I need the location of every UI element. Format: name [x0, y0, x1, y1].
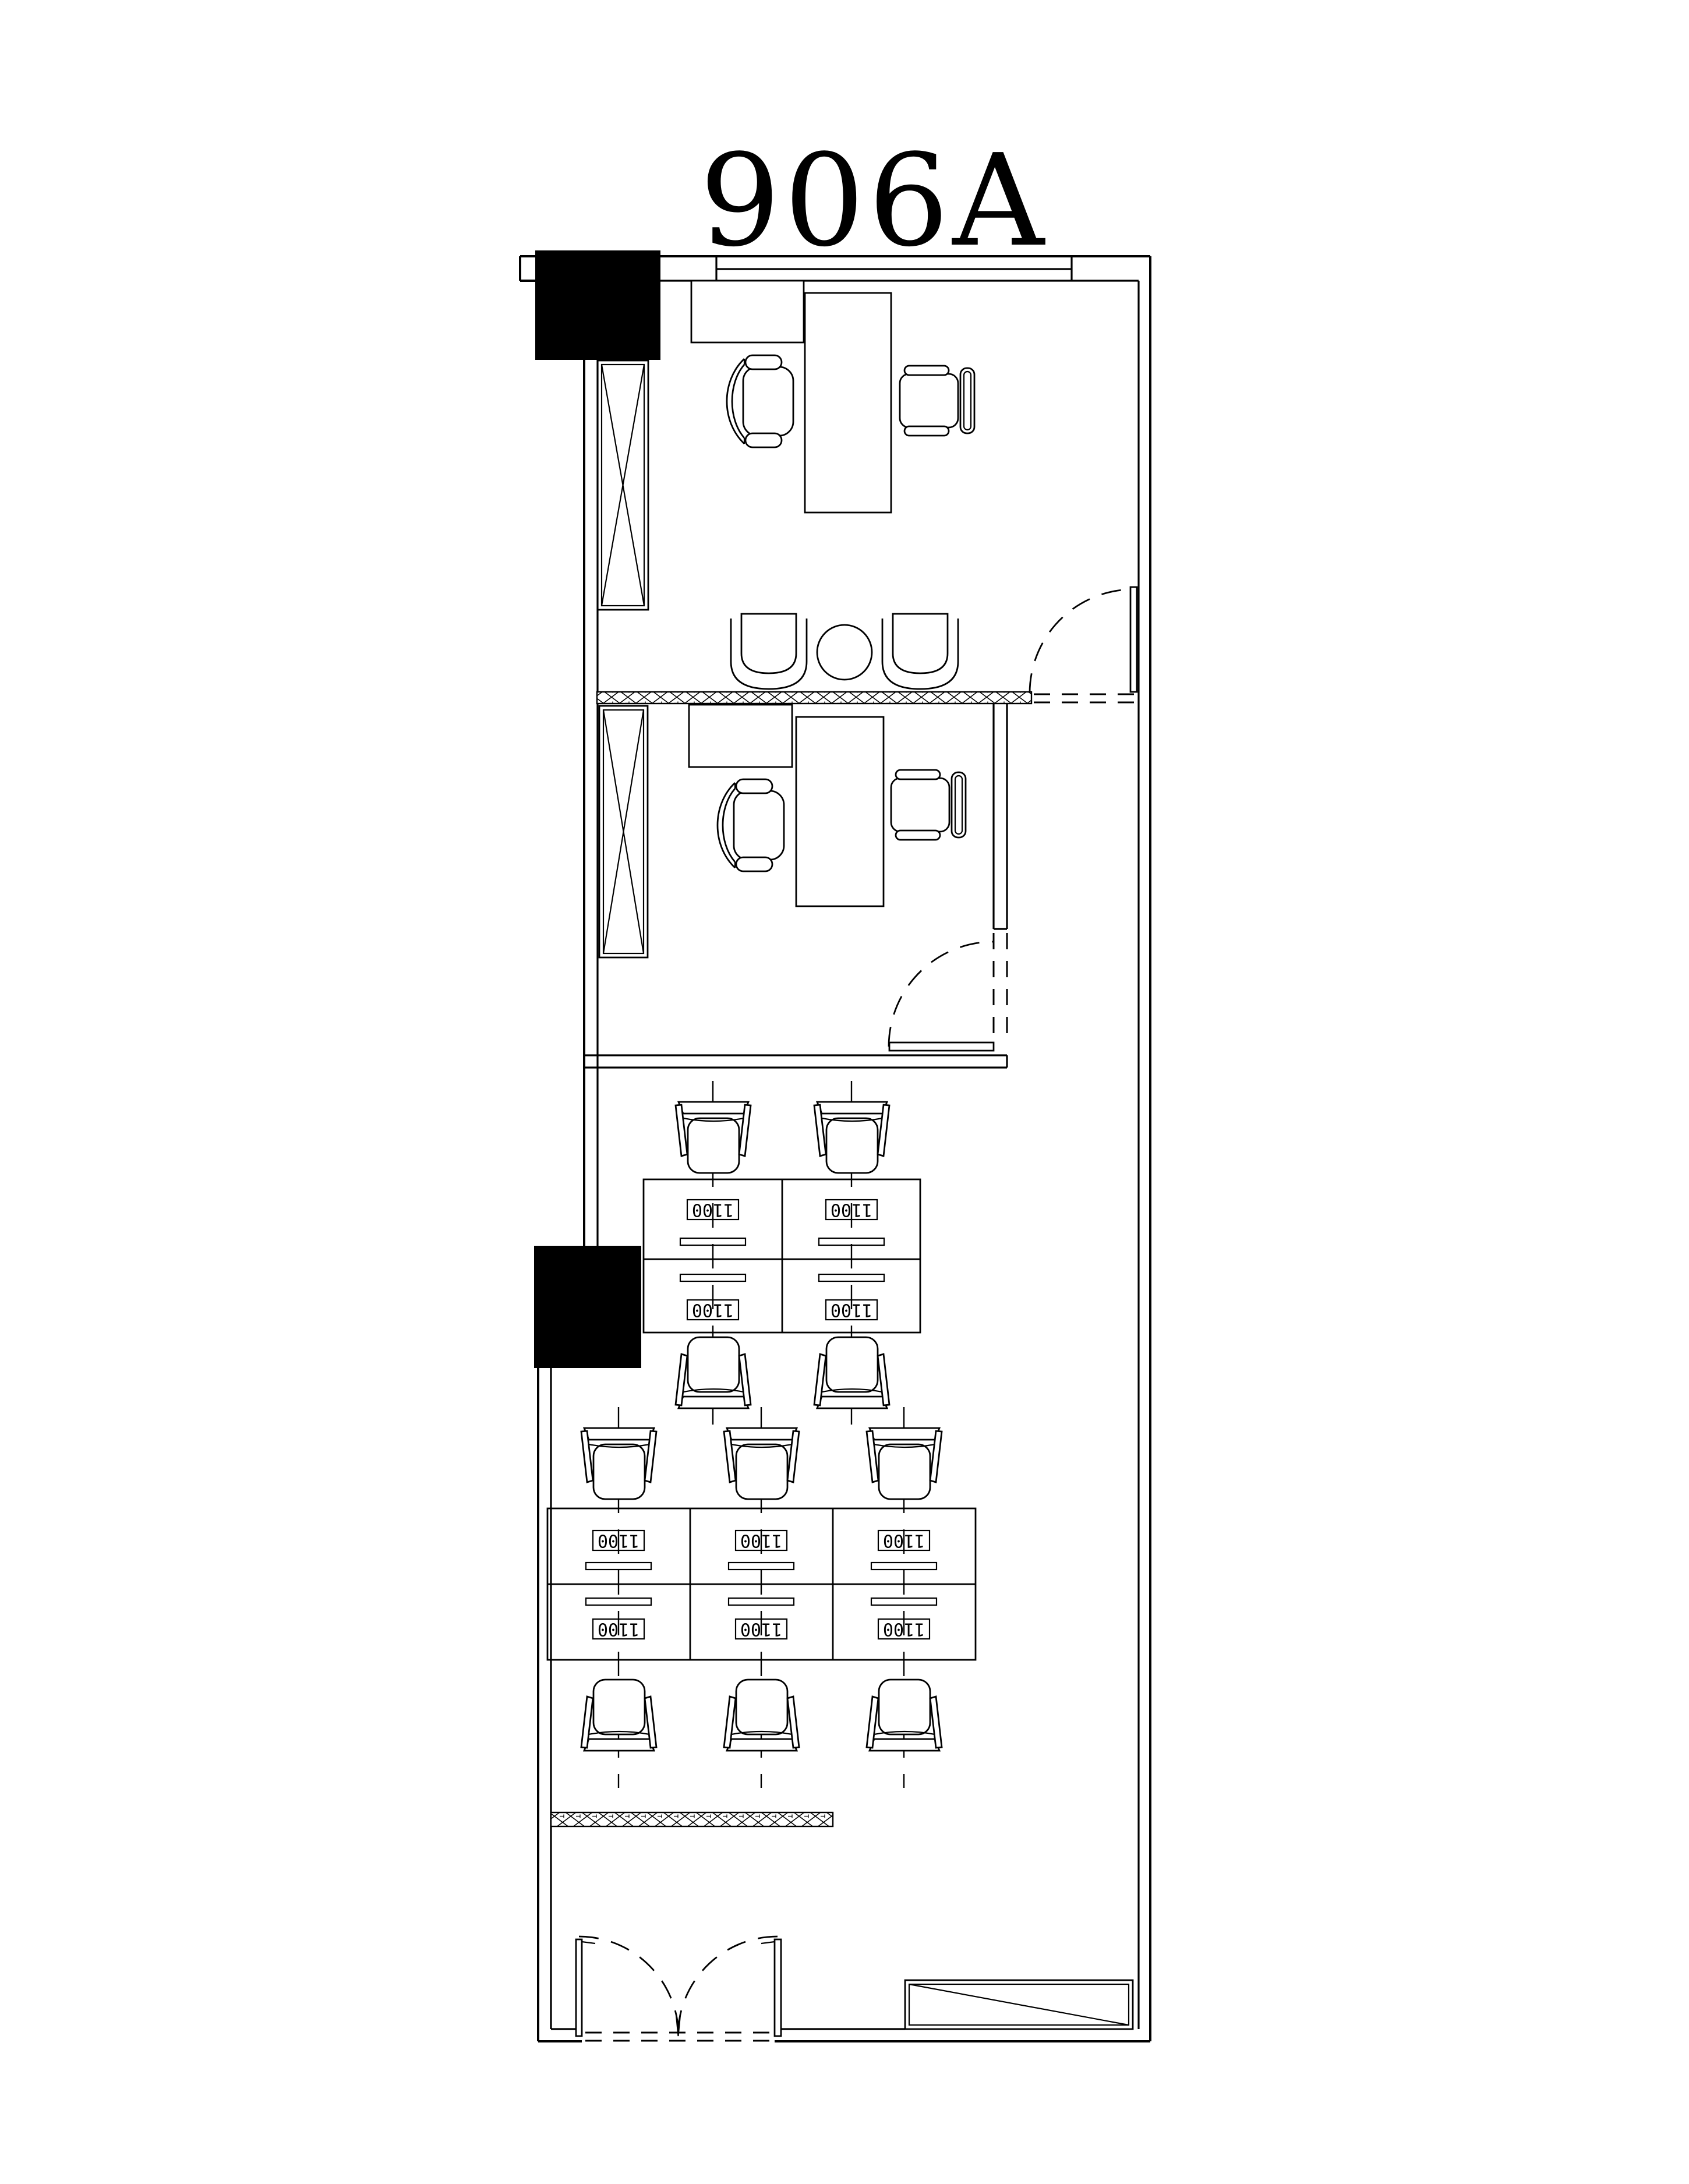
workstation-group-1: 1100 1100 1100 1100	[644, 1081, 920, 1425]
door-office-2	[889, 942, 994, 1051]
ws-chair	[814, 1337, 889, 1408]
closet-2	[599, 706, 648, 957]
ws-chair	[867, 1680, 942, 1751]
floor-plan-drawing: 906A	[0, 0, 1689, 2184]
meeting-chair-2	[882, 614, 958, 689]
desk-label: 1100	[740, 1531, 782, 1551]
entrance-double-door	[576, 1936, 781, 2041]
desk-label: 1100	[598, 1619, 639, 1639]
guest-chair-office-2	[891, 770, 966, 840]
door-leaf-office-1	[1130, 587, 1137, 692]
ws-chair	[867, 1428, 942, 1499]
office-2	[599, 705, 966, 957]
desk-office-2	[796, 717, 884, 906]
ws-chair	[581, 1428, 656, 1499]
desk-label: 1100	[692, 1300, 734, 1320]
entrance-swing-left	[579, 1936, 679, 2036]
closet-1	[598, 361, 648, 610]
ws-chair	[814, 1102, 889, 1173]
ws-chair	[676, 1102, 751, 1173]
desk-label: 1100	[831, 1300, 872, 1320]
exec-chair-office-2	[718, 779, 784, 871]
desk-label: 1100	[692, 1200, 734, 1220]
workstation-group-2: 1100 1100 1100 1100 1100 1100	[547, 1407, 976, 1788]
desk-label: 1100	[883, 1531, 925, 1551]
entrance-leaf-right	[775, 1939, 781, 2036]
hatched-wall-1	[597, 692, 1031, 704]
meeting-chair-1	[731, 614, 807, 689]
desk-label: 1100	[831, 1200, 872, 1220]
desk-return-office-2	[689, 705, 792, 767]
column-2	[535, 1246, 641, 1367]
entrance-leaf-left	[576, 1939, 582, 2036]
exec-chair-office-1	[727, 355, 793, 447]
desk-label: 1100	[883, 1619, 925, 1639]
door-office-1	[1030, 587, 1137, 702]
door-swing-office-2	[889, 942, 994, 1047]
door-leaf-office-2	[889, 1042, 994, 1051]
desk-label: 1100	[740, 1619, 782, 1639]
floor-plan-page: 906A	[0, 0, 1689, 2184]
entrance-swing-right	[678, 1936, 778, 2036]
side-table	[817, 625, 872, 680]
hatched-wall-2	[551, 1812, 833, 1826]
desk-return-office-1	[691, 281, 804, 342]
ws-chair	[581, 1680, 656, 1751]
meeting-corner	[731, 614, 958, 689]
desk-label: 1100	[598, 1531, 639, 1551]
plan-number: 906A	[699, 128, 1048, 275]
guest-chair-office-1	[900, 366, 974, 436]
door-swing-office-1	[1030, 589, 1133, 693]
desk-office-1	[805, 293, 891, 513]
ws-chair	[676, 1337, 751, 1408]
ws-chair	[724, 1428, 799, 1499]
corner-cabinet	[905, 1980, 1133, 2029]
ws-chair	[724, 1680, 799, 1751]
column-1	[536, 251, 660, 359]
